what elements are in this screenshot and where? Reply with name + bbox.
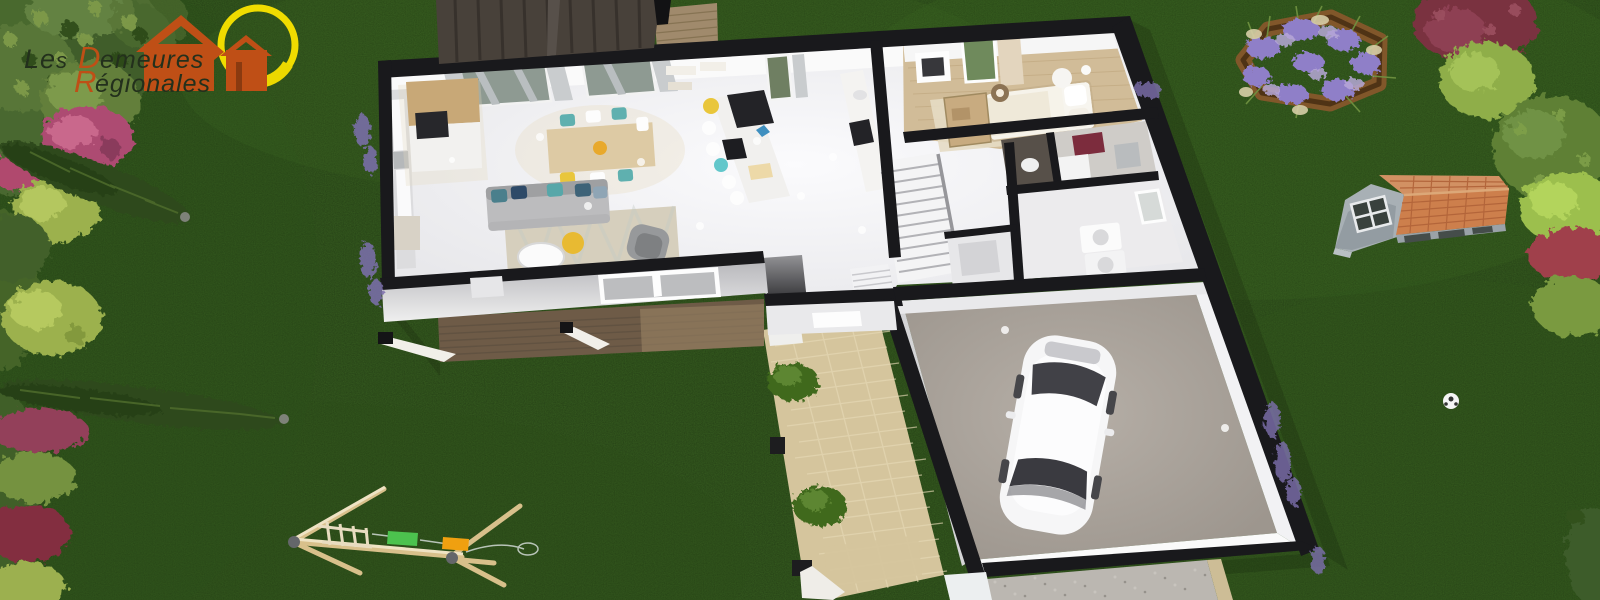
svg-text:Les: Les xyxy=(24,44,68,74)
svg-text:égionales: égionales xyxy=(95,70,211,98)
svg-text:R: R xyxy=(74,64,96,99)
